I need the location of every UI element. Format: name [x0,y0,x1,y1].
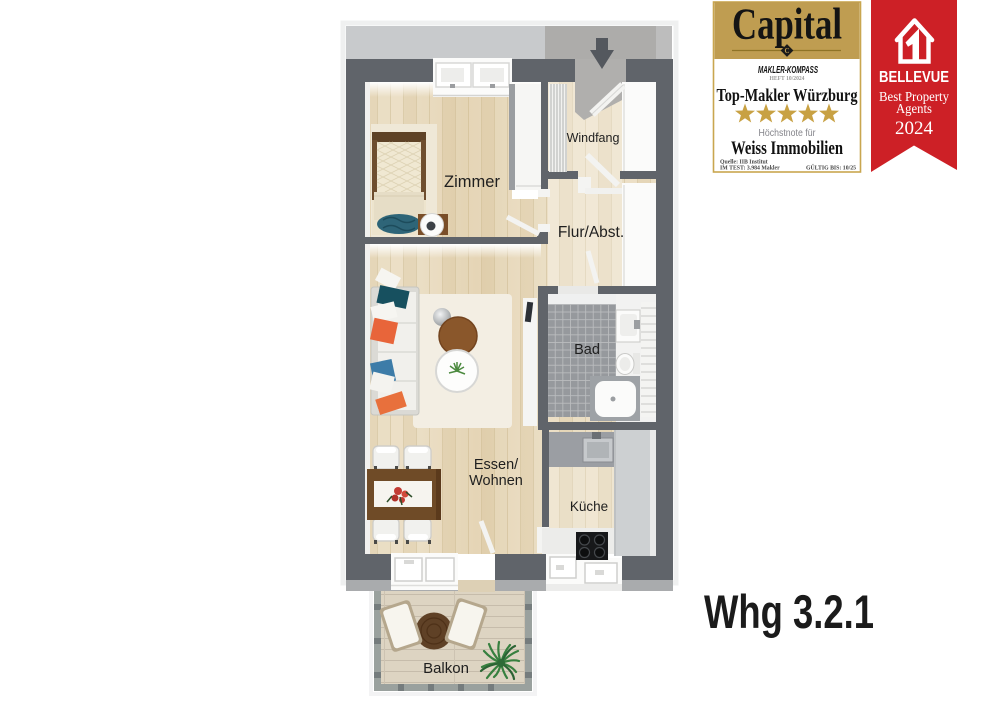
svg-text:GÜLTIG BIS: 10/25: GÜLTIG BIS: 10/25 [806,165,856,172]
svg-text:Windfang: Windfang [567,131,620,145]
svg-text:MAKLER-KOMPASS: MAKLER-KOMPASS [758,65,818,76]
svg-text:Agents: Agents [896,102,932,117]
svg-text:Flur/Abst.: Flur/Abst. [558,224,624,241]
svg-text:Küche: Küche [570,499,608,514]
svg-text:HEFT 10/2024: HEFT 10/2024 [770,76,805,82]
svg-text:Zimmer: Zimmer [444,173,500,191]
svg-text:Weiss Immobilien: Weiss Immobilien [731,138,843,159]
svg-text:IM TEST: 3.984 Makler: IM TEST: 3.984 Makler [720,166,780,172]
svg-text:Essen/: Essen/ [474,457,519,473]
svg-text:C: C [784,47,789,55]
svg-text:Balkon: Balkon [423,660,469,677]
svg-text:2024: 2024 [895,118,934,139]
svg-text:Whg 3.2.1: Whg 3.2.1 [704,585,874,638]
svg-text:Capital: Capital [732,0,842,49]
svg-text:Top-Makler Würzburg: Top-Makler Würzburg [717,85,858,105]
svg-text:BELLEVUE: BELLEVUE [879,69,949,86]
svg-text:Wohnen: Wohnen [469,473,523,489]
svg-text:Bad: Bad [574,342,600,358]
